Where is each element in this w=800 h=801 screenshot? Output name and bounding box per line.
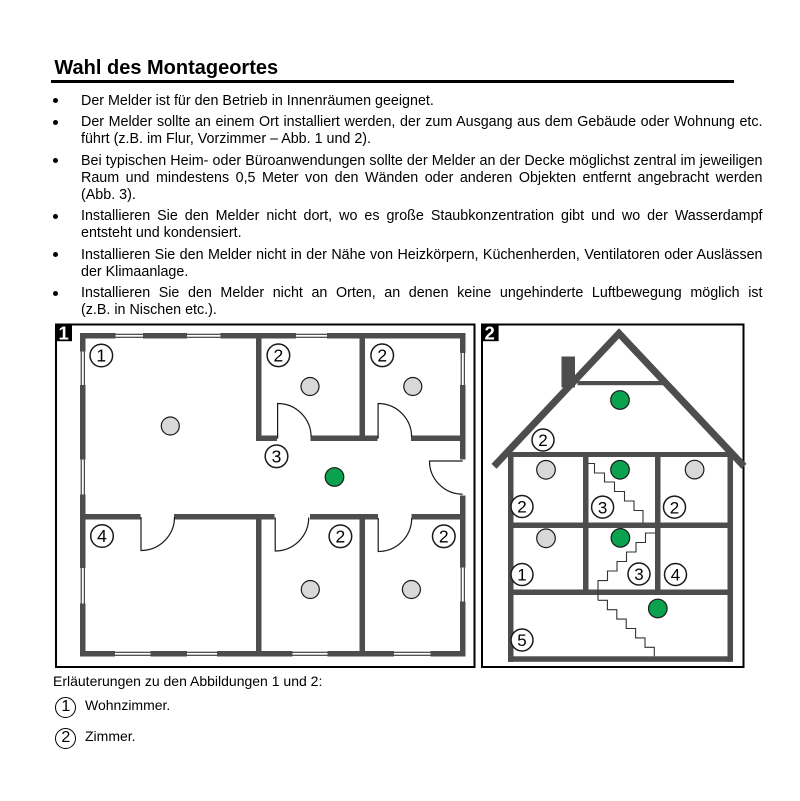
svg-text:5: 5 [517, 631, 526, 650]
svg-text:1: 1 [517, 566, 526, 585]
svg-text:2: 2 [336, 527, 346, 547]
svg-text:2: 2 [439, 527, 449, 547]
svg-text:2: 2 [377, 346, 387, 366]
svg-text:4: 4 [97, 526, 107, 546]
svg-text:3: 3 [272, 447, 282, 467]
svg-text:1: 1 [59, 322, 69, 343]
svg-text:2: 2 [274, 346, 284, 366]
svg-text:4: 4 [671, 566, 680, 585]
svg-text:2: 2 [517, 498, 526, 517]
svg-text:2: 2 [670, 498, 679, 517]
svg-text:2: 2 [538, 431, 547, 450]
svg-text:3: 3 [598, 498, 607, 517]
svg-text:2: 2 [485, 322, 495, 343]
svg-text:3: 3 [634, 565, 643, 584]
svg-text:1: 1 [96, 346, 106, 366]
